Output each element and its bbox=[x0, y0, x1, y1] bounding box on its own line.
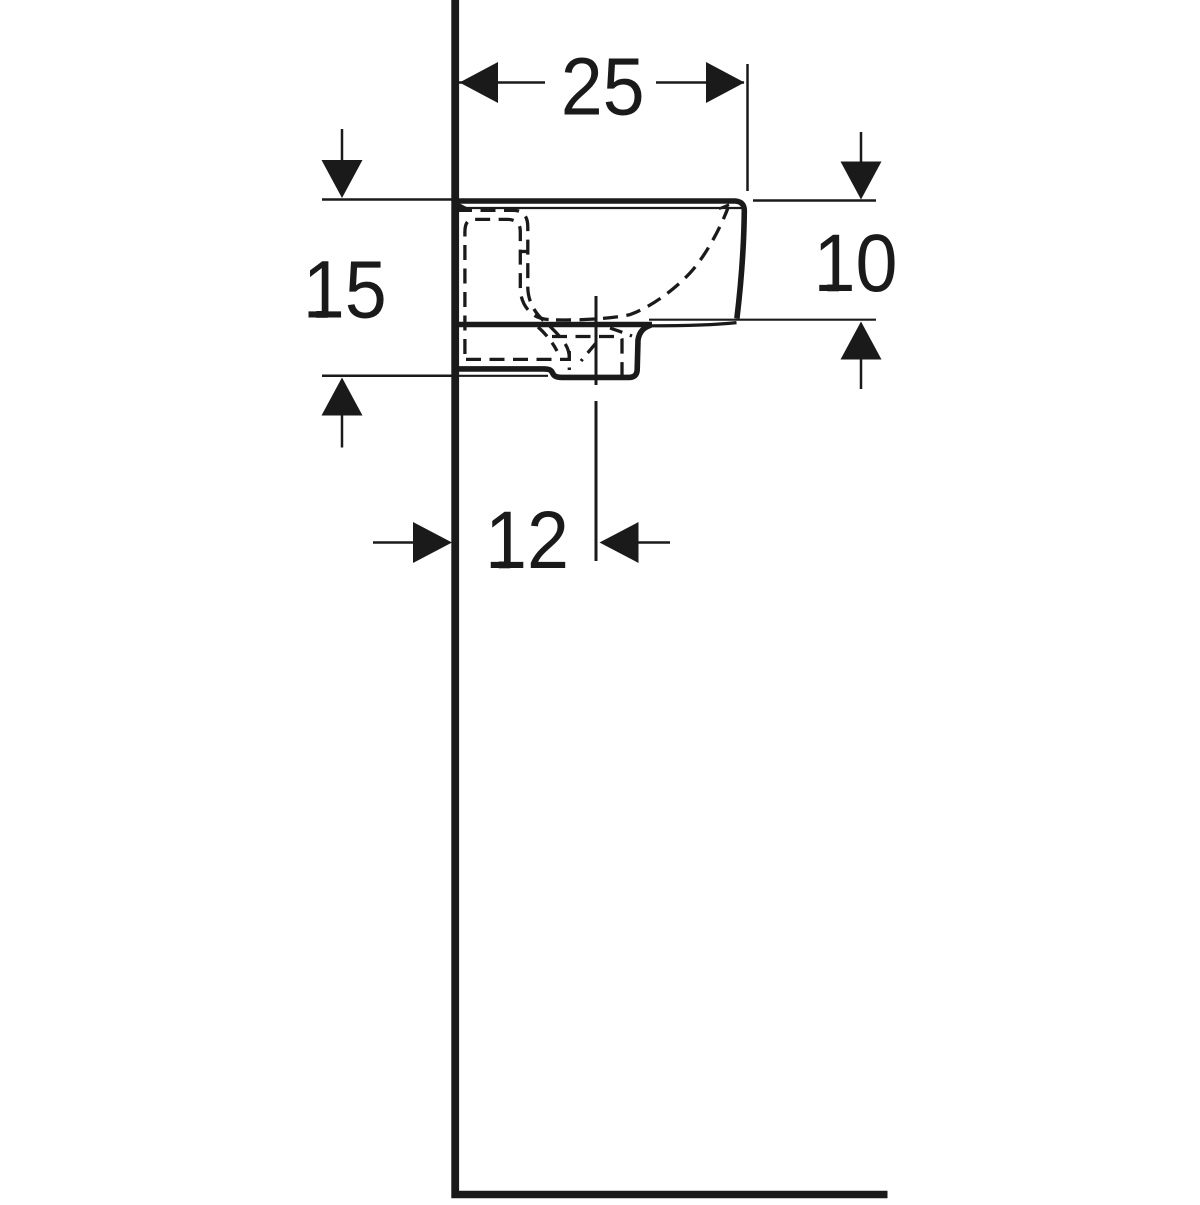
svg-text:15: 15 bbox=[303, 245, 387, 336]
svg-text:10: 10 bbox=[814, 218, 898, 309]
svg-text:12: 12 bbox=[485, 495, 569, 586]
svg-text:25: 25 bbox=[561, 42, 645, 133]
